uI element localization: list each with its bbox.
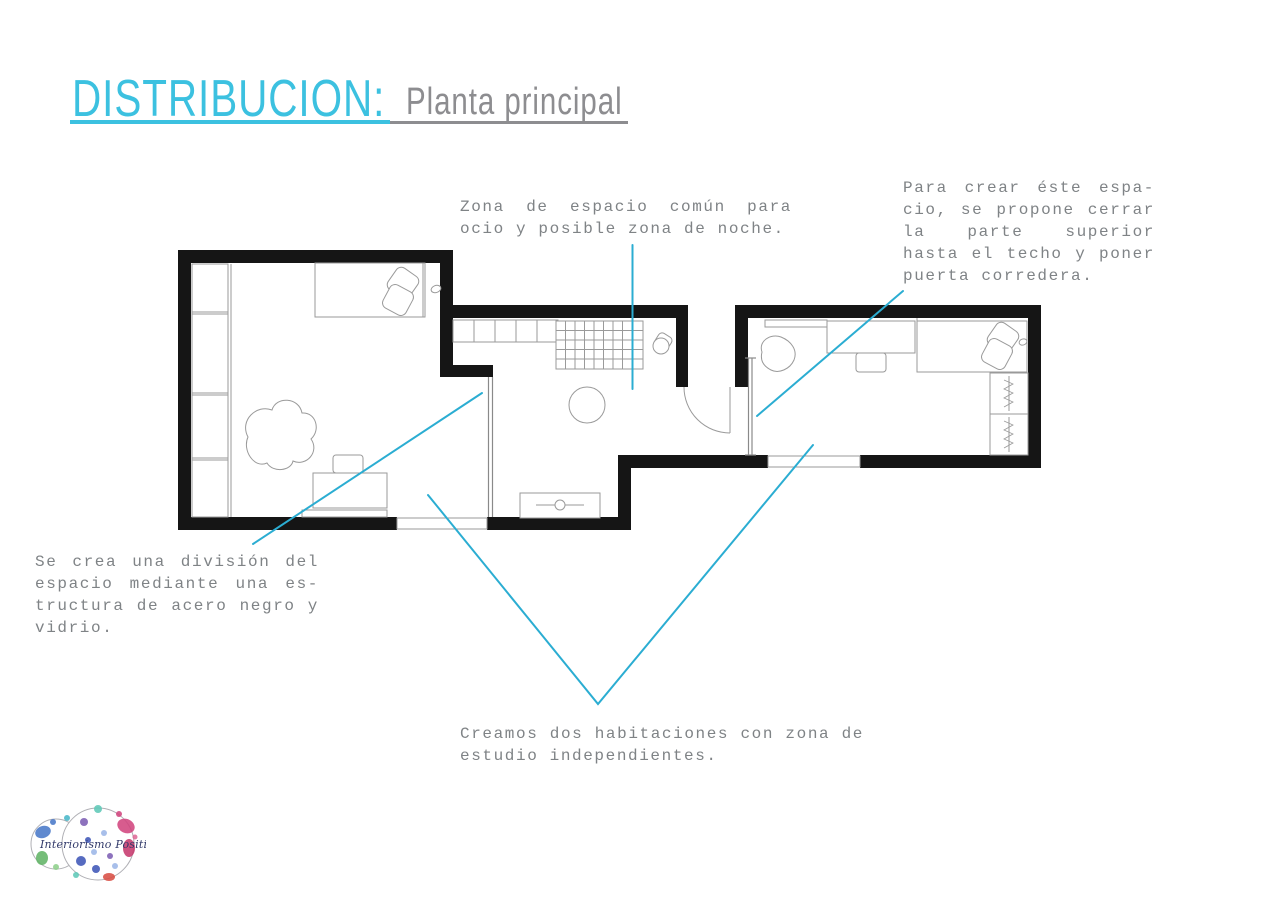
annotation-two-rooms: Creamos dos habitaciones con zona deestu… <box>460 723 864 767</box>
annotation-line: Creamos dos habitaciones con zona de <box>460 723 864 745</box>
bed-right-icon <box>917 320 1028 372</box>
round-table-icon <box>569 387 605 423</box>
annotation-line: estudio independientes. <box>460 745 864 767</box>
logo-text: Interiorismo Positivo <box>39 838 146 851</box>
company-logo: Interiorismo Positivo <box>26 800 146 890</box>
glass-partition-icon <box>489 377 493 517</box>
annotation-sliding-door: Para crear éste espa-cio, se propone cer… <box>903 177 1155 287</box>
walls <box>178 250 1041 530</box>
annotation-line: espacio mediante una es- <box>35 573 319 595</box>
annotation-line: Se crea una división del <box>35 551 319 573</box>
wardrobe-icon <box>192 264 231 517</box>
annotation-line: Para crear éste espa- <box>903 177 1155 199</box>
annotation-line: Zona de espacio común para <box>460 196 792 218</box>
furniture <box>192 263 1028 518</box>
annotation-line: vidrio. <box>35 617 319 639</box>
closet-icon <box>990 373 1028 455</box>
sideboard-icon <box>520 493 600 518</box>
annotation-line: tructura de acero negro y <box>35 595 319 617</box>
annotation-line: puerta corredera. <box>903 265 1155 287</box>
sofa-icon <box>453 320 558 342</box>
plant-icon <box>246 400 317 469</box>
annotation-line: cio, se propone cerrar <box>903 199 1155 221</box>
annotation-line: la parte superior <box>903 221 1155 243</box>
shelf-icon <box>765 320 827 327</box>
chair-sketch-icon <box>653 331 674 354</box>
rug-grid-icon <box>556 321 643 369</box>
bed-icon <box>315 263 442 318</box>
floor-plan <box>0 0 1280 904</box>
presentation-slide: DISTRIBUCION: Planta principal <box>0 0 1280 904</box>
annotation-line: hasta el techo y poner <box>903 243 1155 265</box>
armchair-icon <box>761 336 795 371</box>
annotation-glass-division: Se crea una división delespacio mediante… <box>35 551 319 639</box>
annotation-common-zone: Zona de espacio común paraocio y posible… <box>460 196 792 240</box>
annotation-line: ocio y posible zona de noche. <box>460 218 792 240</box>
door-arc-icon <box>684 387 730 433</box>
